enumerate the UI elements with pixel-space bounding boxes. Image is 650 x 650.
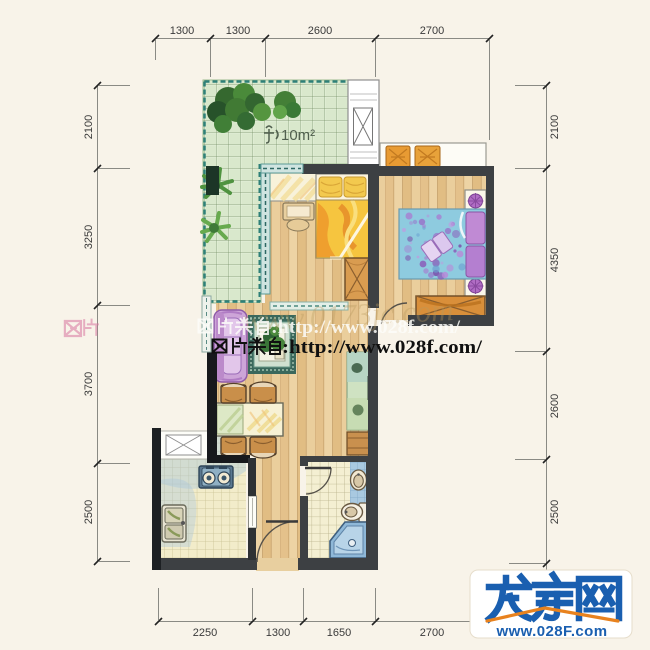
svg-text:10m²: 10m²	[281, 127, 315, 144]
svg-text:4350: 4350	[549, 248, 561, 272]
svg-text:2700: 2700	[420, 25, 444, 37]
svg-text:1300: 1300	[266, 627, 290, 639]
svg-text:3700: 3700	[83, 372, 95, 396]
svg-text:www.028F.com: www.028F.com	[496, 623, 608, 640]
svg-text:1300: 1300	[170, 25, 194, 37]
svg-text:3250: 3250	[83, 225, 95, 249]
svg-text:1300: 1300	[226, 25, 250, 37]
svg-text:2100: 2100	[549, 115, 561, 139]
svg-text:2700: 2700	[420, 627, 444, 639]
svg-text:1650: 1650	[327, 627, 351, 639]
svg-text::http://www.028f.com/: :http://www.028f.com/	[271, 317, 461, 338]
svg-text:2500: 2500	[549, 500, 561, 524]
svg-text:2250: 2250	[193, 627, 217, 639]
svg-text:2100: 2100	[83, 115, 95, 139]
svg-text:2500: 2500	[83, 500, 95, 524]
svg-text::http://www.028f.com/: :http://www.028f.com/	[282, 337, 483, 358]
svg-text:2600: 2600	[549, 394, 561, 418]
svg-text:2600: 2600	[308, 25, 332, 37]
